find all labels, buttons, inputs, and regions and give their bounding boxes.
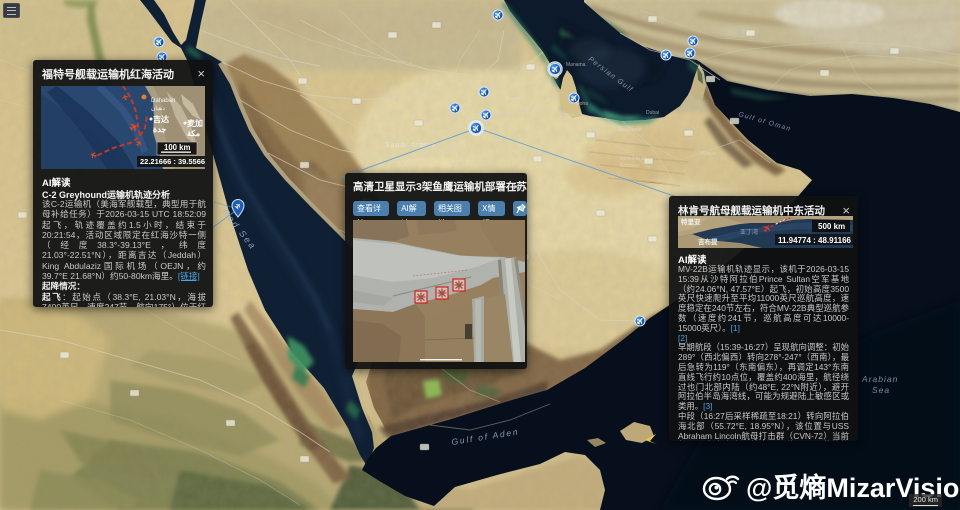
svg-text:Abu Dhabi: Abu Dhabi — [618, 127, 641, 133]
svg-text:Riyadh: Riyadh — [505, 96, 521, 102]
svg-text:Manama: Manama — [566, 62, 586, 68]
svg-text:Muscat: Muscat — [700, 151, 717, 157]
svg-text:特里亚: 特里亚 — [681, 217, 701, 226]
svg-text:500 km: 500 km — [818, 222, 845, 231]
svg-text:11.94774 : 48.91166: 11.94774 : 48.91166 — [778, 236, 852, 245]
svg-text:Dubai: Dubai — [646, 110, 659, 116]
svg-text:Dahaban: Dahaban — [151, 98, 175, 104]
svg-text:Sea: Sea — [872, 385, 890, 395]
svg-text:吉布提: 吉布提 — [698, 237, 718, 246]
svg-text:亚丁湾: 亚丁湾 — [740, 228, 758, 236]
svg-text:100 km: 100 km — [164, 143, 191, 152]
svg-text:吉达: 吉达 — [153, 114, 169, 124]
svg-text:麦加: 麦加 — [187, 118, 203, 128]
svg-text:دهبان: دهبان — [151, 105, 165, 112]
svg-text:Arabian: Arabian — [861, 374, 898, 384]
svg-text:United Arab: United Arab — [620, 156, 646, 162]
svg-text:22.21666 : 39.55664: 22.21666 : 39.55664 — [140, 157, 205, 166]
svg-text:Emirates: Emirates — [620, 163, 640, 169]
svg-text:جدة: جدة — [153, 125, 166, 134]
svg-text:مكة: مكة — [187, 129, 200, 138]
